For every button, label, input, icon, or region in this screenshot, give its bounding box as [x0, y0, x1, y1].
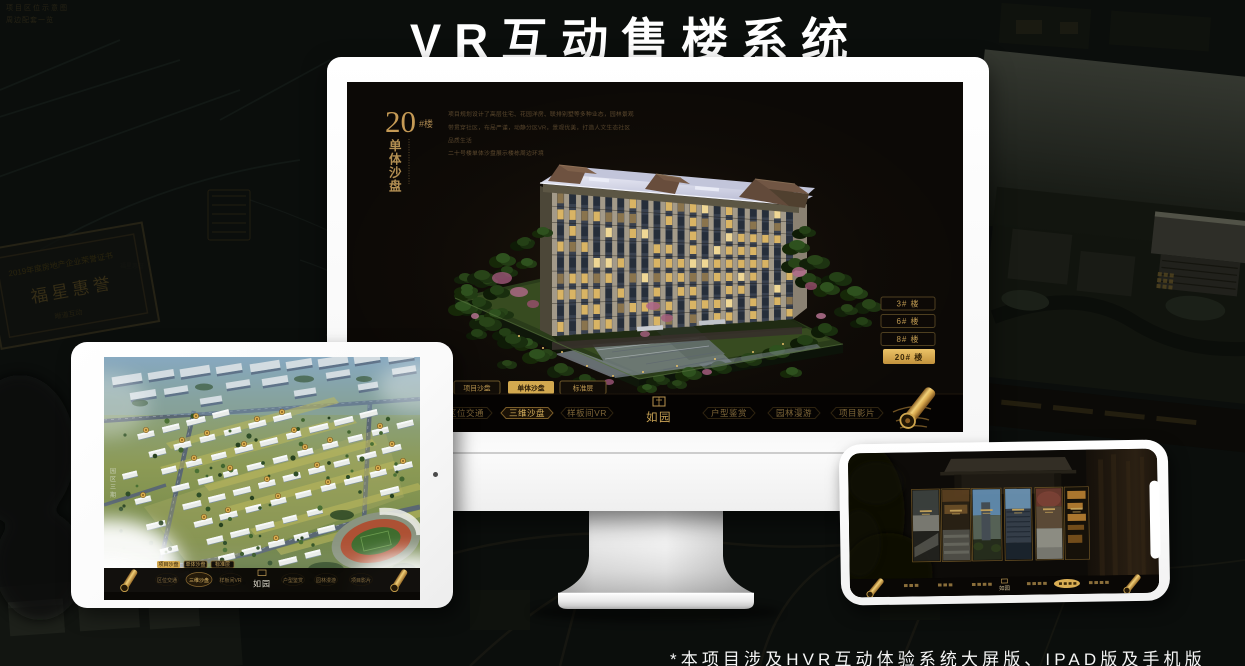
svg-text:项目规划设计了高层住宅、花园洋房、联排别墅等多种业态，园林景: 项目规划设计了高层住宅、花园洋房、联排别墅等多种业态，园林景观 — [448, 110, 634, 118]
svg-text:区位交通: 区位交通 — [157, 577, 177, 584]
svg-text:如园: 如园 — [646, 410, 672, 424]
svg-text:6# 楼: 6# 楼 — [896, 316, 919, 326]
svg-text:项目沙盘: 项目沙盘 — [158, 561, 178, 568]
svg-text:单体沙盘: 单体沙盘 — [185, 561, 205, 568]
svg-text:带贯穿社区，布局严谨，动静分区VR，景观优美，打造人文生态社: 带贯穿社区，布局严谨，动静分区VR，景观优美，打造人文生态社区 — [448, 124, 630, 132]
svg-text:20: 20 — [385, 104, 416, 139]
svg-text:三: 三 — [110, 484, 116, 491]
svg-text:沙: 沙 — [389, 166, 402, 180]
svg-text:标准层: 标准层 — [573, 384, 594, 393]
svg-text:项目影片: 项目影片 — [351, 577, 371, 584]
svg-text:户型鉴赏: 户型鉴赏 — [283, 577, 303, 584]
svg-text:#楼: #楼 — [419, 118, 433, 129]
svg-text:8# 楼: 8# 楼 — [896, 334, 919, 344]
svg-text:如园: 如园 — [253, 579, 271, 589]
svg-text:体: 体 — [389, 152, 402, 167]
svg-text:20# 楼: 20# 楼 — [895, 352, 924, 362]
svg-text:3# 楼: 3# 楼 — [896, 299, 919, 309]
svg-text:三维沙盘: 三维沙盘 — [189, 577, 209, 584]
svg-text:期: 期 — [110, 491, 116, 499]
svg-text:区位交通: 区位交通 — [448, 408, 484, 418]
svg-text:单体沙盘: 单体沙盘 — [517, 384, 544, 393]
svg-text:项目沙盘: 项目沙盘 — [463, 384, 490, 393]
svg-text:样板间VR: 样板间VR — [220, 577, 242, 584]
svg-text:户型鉴赏: 户型鉴赏 — [711, 408, 747, 418]
svg-text:园: 园 — [110, 468, 116, 475]
svg-text:区: 区 — [110, 476, 116, 483]
svg-text:品质生活: 品质生活 — [448, 137, 472, 145]
svg-text:园林漫游: 园林漫游 — [776, 408, 812, 418]
svg-text:样板间VR: 样板间VR — [567, 408, 607, 418]
svg-text:项目影片: 项目影片 — [839, 408, 875, 418]
svg-text:园林漫游: 园林漫游 — [316, 577, 336, 584]
svg-text:二十号楼单体沙盘展示楼栋周边环境: 二十号楼单体沙盘展示楼栋周边环境 — [448, 149, 544, 157]
svg-text:三维沙盘: 三维沙盘 — [509, 408, 545, 418]
svg-text:标准层: 标准层 — [215, 561, 230, 568]
svg-text:单: 单 — [389, 138, 402, 153]
svg-text:盘: 盘 — [389, 179, 402, 194]
svg-text:如园: 如园 — [999, 583, 1011, 591]
